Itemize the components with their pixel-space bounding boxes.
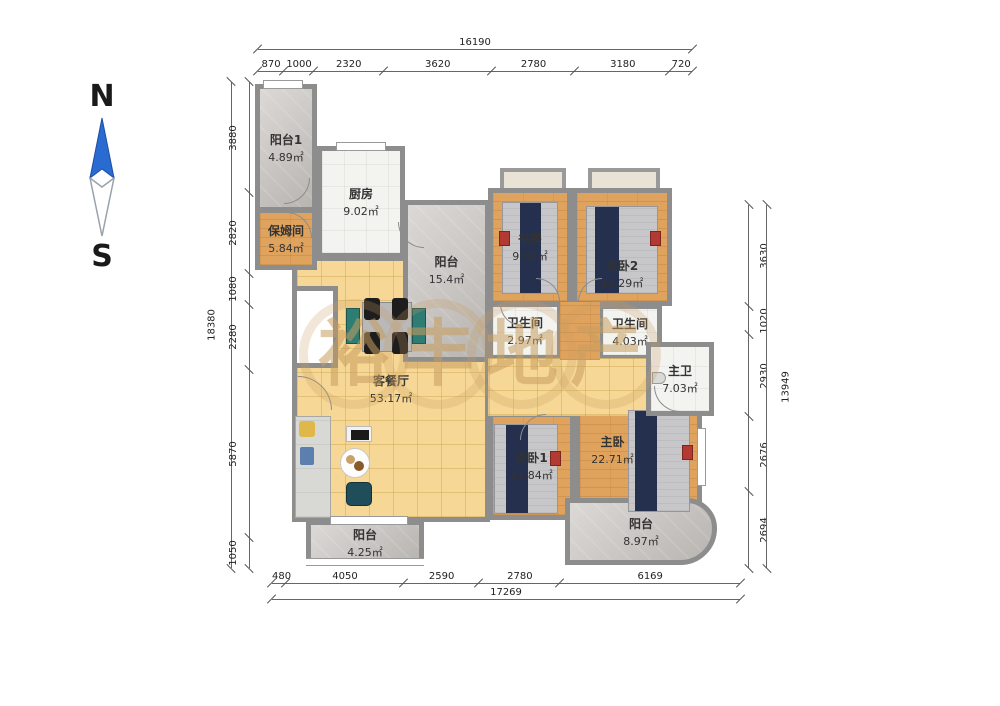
compass-north-label: N (72, 82, 132, 112)
room-name: 主卧 (600, 433, 624, 450)
room-kitchen: 厨房 9.02㎡ (317, 146, 405, 258)
dim-bottom-total: 17269 (272, 580, 740, 600)
dining-chair (412, 308, 426, 344)
bed-master (628, 410, 690, 512)
room-name: 阳台1 (270, 131, 302, 148)
window (263, 80, 303, 89)
dim-label: 870 (258, 59, 284, 70)
room-bathroom-1: 卫生间 2.97㎡ (488, 302, 562, 360)
room-name: 厨房 (349, 185, 373, 202)
room-name: 卫生间 (612, 315, 648, 332)
bed-study (502, 202, 558, 294)
bed-pillow (550, 451, 561, 466)
dim-label: 18380 (207, 309, 218, 341)
window (330, 516, 408, 525)
room-area: 15.4㎡ (429, 271, 465, 287)
plate (354, 461, 364, 471)
bed-quilt (635, 411, 657, 511)
dim-label: 3620 (384, 59, 492, 70)
dim-label: 16190 (258, 37, 692, 48)
dim-label: 1080 (228, 276, 239, 301)
hallway-floor (488, 358, 650, 416)
bed-pillow (650, 231, 661, 246)
room-area: 9.02㎡ (343, 203, 379, 219)
room-area: 2.97㎡ (507, 332, 543, 348)
room-name: 阳台 (434, 253, 458, 270)
dim-label: 720 (670, 59, 692, 70)
armchair (346, 482, 372, 506)
bed-pillow (499, 231, 510, 246)
dim-label: 1050 (228, 540, 239, 565)
dim-label: 3180 (575, 59, 670, 70)
void-lightwell (292, 286, 338, 368)
dining-chair (364, 298, 380, 320)
floor-plan-canvas: N S 客餐厅 53.17㎡ 阳台 15.4㎡ 阳台1 4.89㎡ 保姆间 5.… (0, 0, 1000, 706)
window (336, 142, 386, 151)
window (697, 428, 706, 486)
compass-needle-icon (80, 112, 124, 242)
room-area: 8.97㎡ (623, 533, 659, 549)
dim-label: 1000 (284, 59, 314, 70)
bed-pillow (682, 445, 693, 460)
sofa (295, 416, 331, 518)
tv (346, 426, 372, 442)
dim-label: 2320 (314, 59, 383, 70)
room-area: 4.03㎡ (612, 333, 648, 349)
compass: N S (72, 82, 132, 272)
dining-chair (392, 332, 408, 354)
dining-set (346, 298, 426, 354)
tv-screen (351, 430, 369, 440)
dim-top-total: 16190 (258, 30, 692, 50)
hallway-floor-2 (560, 302, 600, 360)
dim-label: 3880 (228, 125, 239, 150)
dim-label: 17269 (272, 587, 740, 598)
coffee-table (340, 448, 370, 478)
dim-right-total: 13949 (766, 205, 784, 568)
dim-left-segments: 3880 2820 1080 2280 5870 1050 (232, 82, 250, 568)
dim-right-segments: 3630 1020 2930 2676 2694 (748, 205, 766, 568)
room-name: 阳台 (353, 526, 377, 543)
dim-label: 2820 (228, 221, 239, 246)
room-name: 主卫 (668, 362, 692, 379)
dining-chair (364, 332, 380, 354)
room-name: 客餐厅 (373, 372, 409, 389)
dim-label: 5870 (228, 441, 239, 466)
dim-label: 13949 (780, 371, 791, 403)
dim-top-segments: 870 1000 2320 3620 2780 3180 720 (258, 52, 692, 72)
compass-south-label: S (72, 242, 132, 272)
room-area: 53.17㎡ (370, 390, 413, 406)
dim-label: 2780 (492, 59, 575, 70)
room-name: 阳台 (629, 515, 653, 532)
sofa-cushion (300, 447, 314, 465)
sink-icon (652, 372, 666, 384)
dining-chair (392, 298, 408, 320)
room-area: 4.89㎡ (268, 149, 304, 165)
dim-label: 2280 (228, 325, 239, 350)
dining-chair (346, 308, 360, 344)
room-area: 5.84㎡ (268, 240, 304, 256)
sofa-cushion (299, 421, 315, 437)
